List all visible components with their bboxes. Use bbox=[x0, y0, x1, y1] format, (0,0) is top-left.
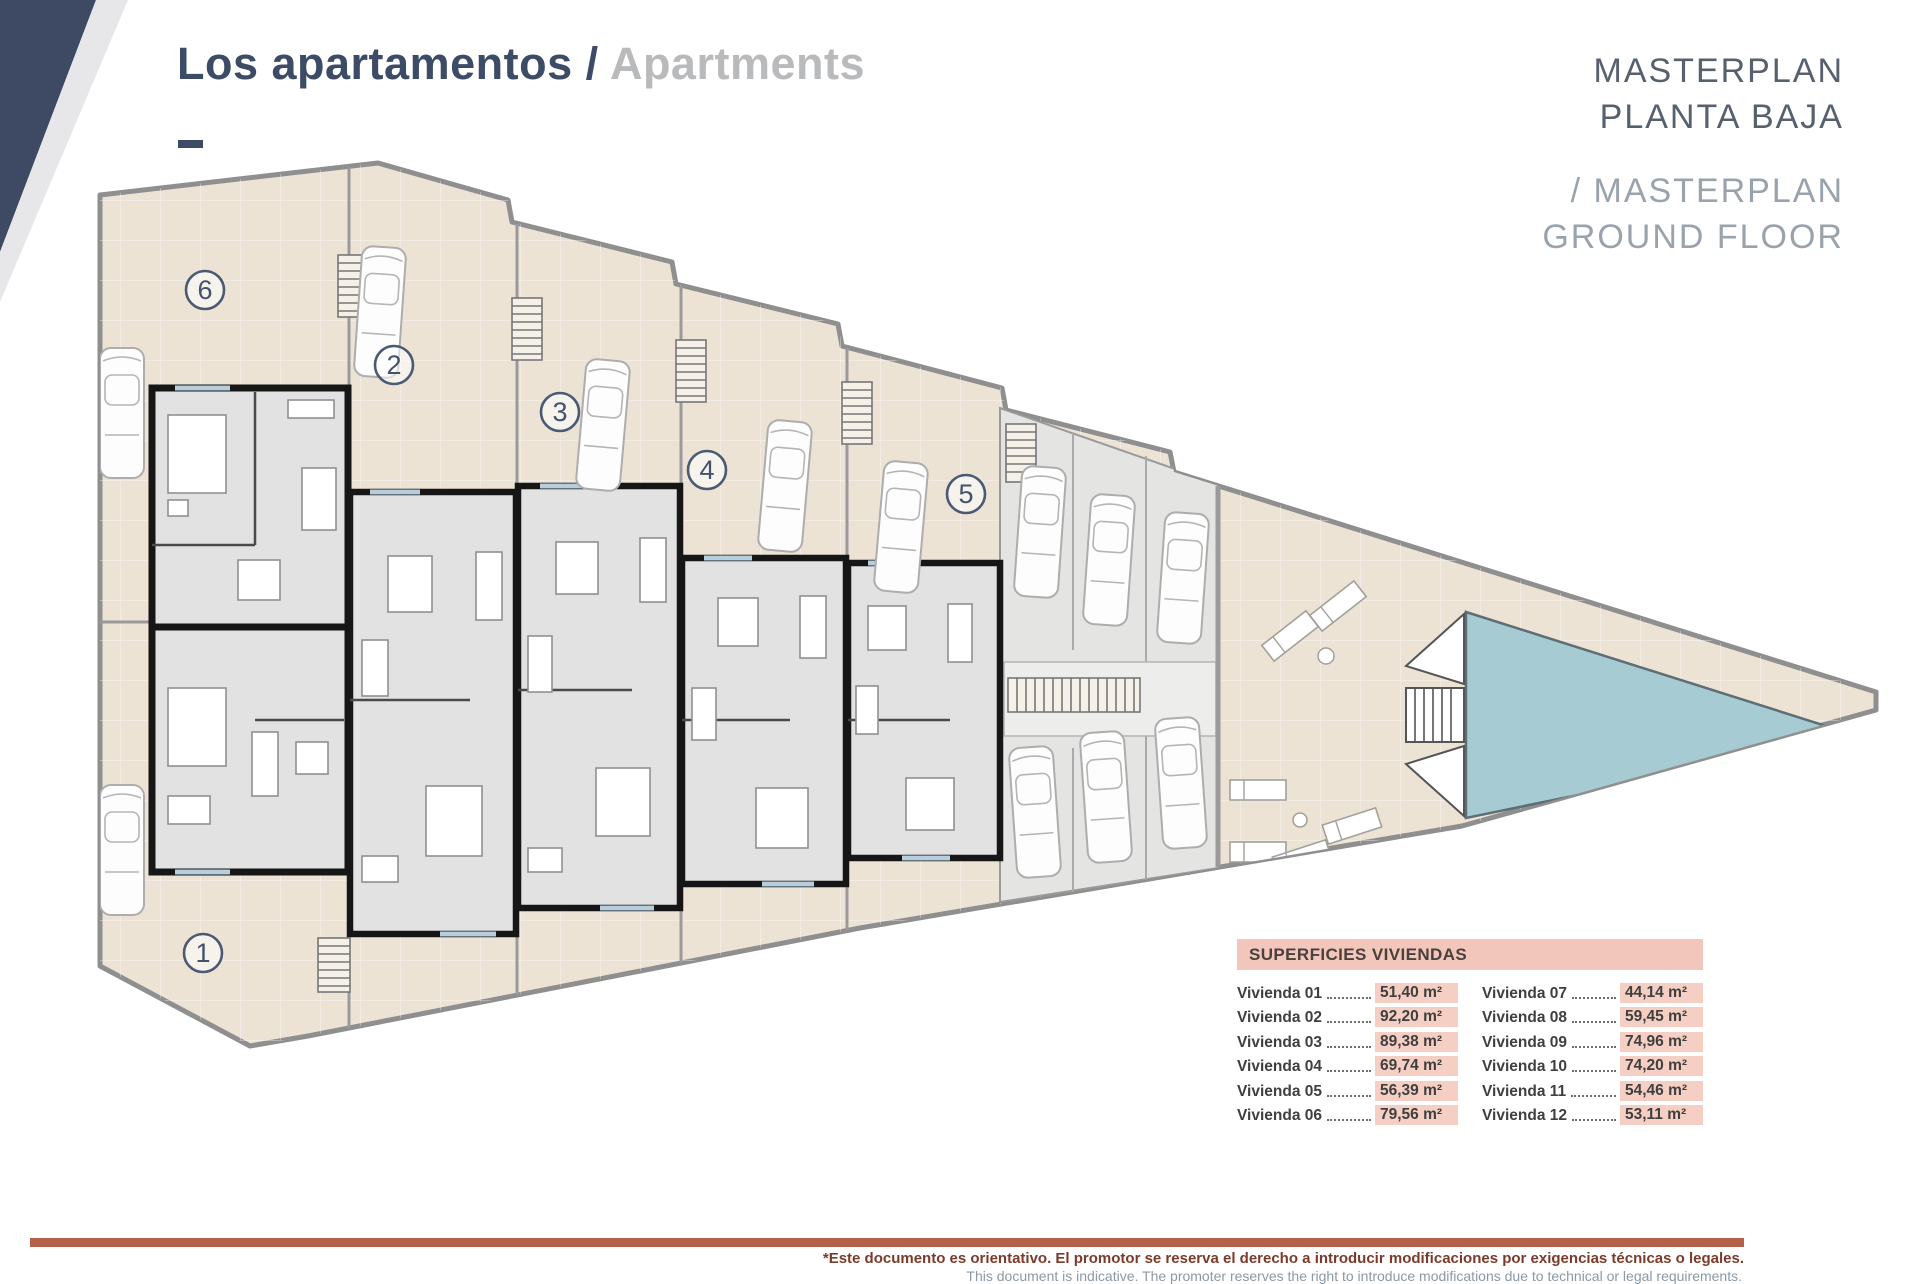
area-value: 69,74 m² bbox=[1375, 1056, 1458, 1076]
disclaimer-en: This document is indicative. The promote… bbox=[966, 1268, 1742, 1284]
car-icon bbox=[1014, 466, 1067, 599]
page: { "header": { "title_primary": "Los apar… bbox=[0, 0, 1920, 1280]
table-row: Vivienda 0469,74 m² bbox=[1237, 1052, 1458, 1077]
car-icon bbox=[1009, 746, 1062, 879]
masterplan-line-1: MASTERPLAN bbox=[1542, 48, 1844, 94]
area-value: 56,39 m² bbox=[1375, 1081, 1458, 1101]
table-row: Vivienda 0151,40 m² bbox=[1237, 978, 1458, 1003]
area-value: 51,40 m² bbox=[1375, 983, 1458, 1003]
table-row: Vivienda 1253,11 m² bbox=[1482, 1101, 1703, 1126]
table-row: Vivienda 1074,20 m² bbox=[1482, 1052, 1703, 1077]
apartment-block-6-1 bbox=[152, 388, 348, 872]
footer-accent-bar bbox=[30, 1238, 1744, 1247]
svg-text:5: 5 bbox=[958, 479, 973, 509]
areas-column-left: Vivienda 0151,40 m² Vivienda 0292,20 m² … bbox=[1237, 978, 1458, 1125]
svg-text:6: 6 bbox=[197, 275, 212, 305]
table-row: Vivienda 0556,39 m² bbox=[1237, 1076, 1458, 1101]
sun-lounger-icon bbox=[1230, 780, 1286, 800]
unit-circle-1: 1 bbox=[184, 934, 222, 972]
page-title-es: Los apartamentos / bbox=[177, 38, 599, 89]
apartment-block-5 bbox=[848, 563, 1000, 858]
apartment-block-4 bbox=[682, 558, 846, 884]
table-row: Vivienda 0292,20 m² bbox=[1237, 1003, 1458, 1028]
table-row: Vivienda 0679,56 m² bbox=[1237, 1101, 1458, 1126]
car-icon bbox=[1157, 512, 1210, 645]
car-icon bbox=[1155, 717, 1208, 850]
table-row: Vivienda 0389,38 m² bbox=[1237, 1027, 1458, 1052]
masterplan-line-4: GROUND FLOOR bbox=[1542, 214, 1844, 260]
car-icon bbox=[100, 785, 144, 915]
area-value: 79,56 m² bbox=[1375, 1105, 1458, 1125]
masterplan-line-2: PLANTA BAJA bbox=[1542, 94, 1844, 140]
page-title: Los apartamentos / Apartments bbox=[177, 38, 865, 90]
areas-panel: SUPERFICIES VIVIENDAS Vivienda 0151,40 m… bbox=[1237, 939, 1703, 1125]
table-row: Vivienda 0859,45 m² bbox=[1482, 1003, 1703, 1028]
area-value: 44,14 m² bbox=[1620, 983, 1703, 1003]
area-value: 92,20 m² bbox=[1375, 1007, 1458, 1027]
area-value: 53,11 m² bbox=[1620, 1105, 1703, 1125]
unit-circle-3: 3 bbox=[541, 393, 579, 431]
unit-circle-2: 2 bbox=[375, 346, 413, 384]
disclaimer-es: *Este documento es orientativo. El promo… bbox=[823, 1250, 1744, 1267]
unit-circle-5: 5 bbox=[947, 475, 985, 513]
unit-circle-4: 4 bbox=[688, 451, 726, 489]
apartment-block-2 bbox=[350, 492, 516, 934]
title-dash bbox=[178, 140, 203, 148]
svg-text:3: 3 bbox=[552, 397, 567, 427]
apartment-block-3 bbox=[518, 486, 680, 908]
area-value: 89,38 m² bbox=[1375, 1032, 1458, 1052]
area-value: 74,96 m² bbox=[1620, 1032, 1703, 1052]
areas-panel-title: SUPERFICIES VIVIENDAS bbox=[1237, 939, 1703, 970]
area-value: 59,45 m² bbox=[1620, 1007, 1703, 1027]
page-title-en: Apartments bbox=[599, 38, 865, 89]
car-icon bbox=[100, 348, 144, 478]
areas-column-right: Vivienda 0744,14 m² Vivienda 0859,45 m² … bbox=[1482, 978, 1703, 1125]
table-row: Vivienda 1154,46 m² bbox=[1482, 1076, 1703, 1101]
masterplan-line-3: / MASTERPLAN bbox=[1542, 168, 1844, 214]
svg-text:1: 1 bbox=[195, 938, 210, 968]
area-value: 54,46 m² bbox=[1620, 1081, 1703, 1101]
unit-circle-6: 6 bbox=[186, 271, 224, 309]
car-icon bbox=[1083, 494, 1136, 627]
table-row: Vivienda 0974,96 m² bbox=[1482, 1027, 1703, 1052]
masterplan-heading: MASTERPLAN PLANTA BAJA / MASTERPLAN GROU… bbox=[1542, 48, 1844, 260]
car-icon bbox=[1080, 731, 1133, 864]
svg-text:2: 2 bbox=[386, 350, 401, 380]
area-value: 74,20 m² bbox=[1620, 1056, 1703, 1076]
table-row: Vivienda 0744,14 m² bbox=[1482, 978, 1703, 1003]
svg-text:4: 4 bbox=[699, 455, 714, 485]
